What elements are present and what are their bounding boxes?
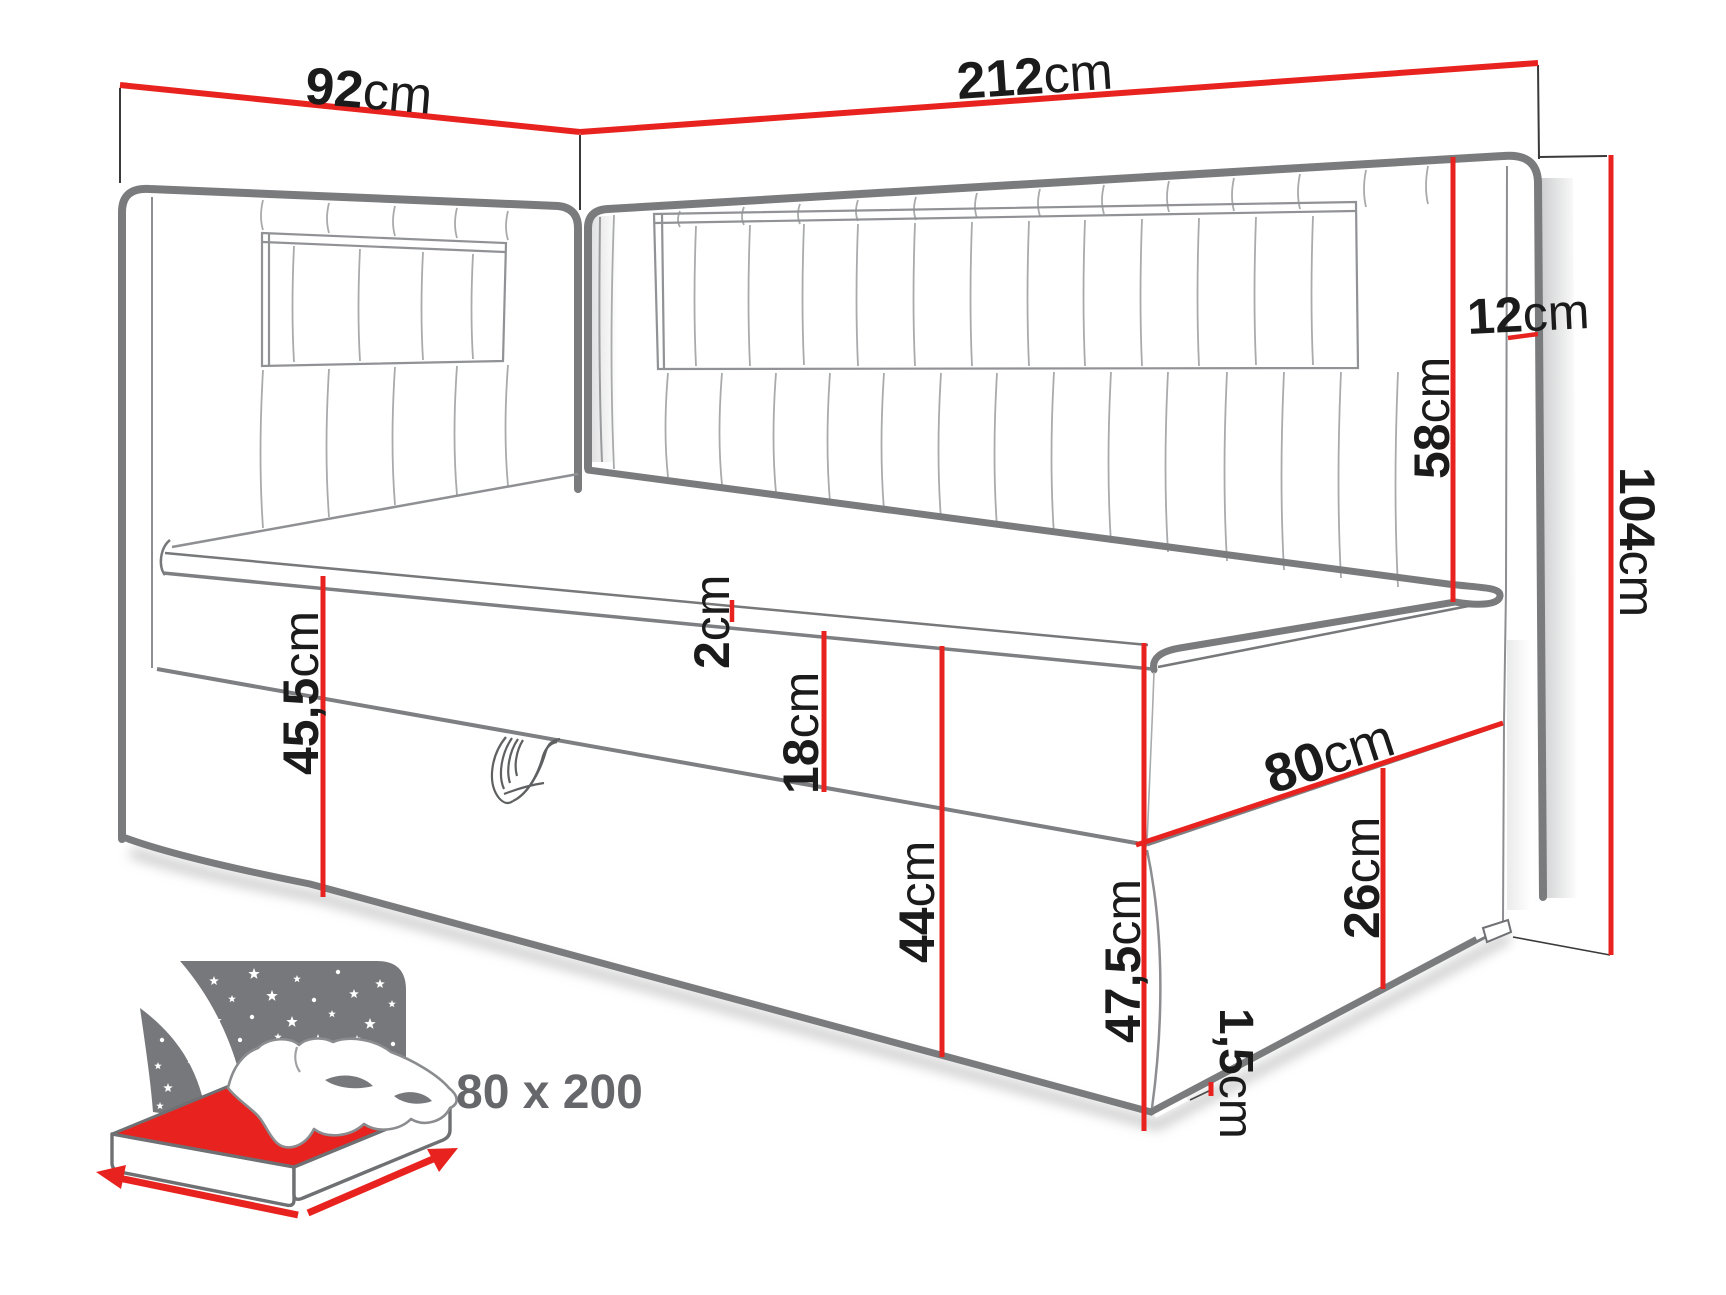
svg-text:26cm: 26cm — [1334, 817, 1390, 939]
svg-text:44cm: 44cm — [889, 841, 945, 963]
svg-text:18cm: 18cm — [773, 672, 829, 794]
svg-text:12cm: 12cm — [1466, 283, 1591, 345]
svg-text:2cm: 2cm — [684, 575, 740, 669]
svg-text:45,5cm: 45,5cm — [273, 611, 329, 775]
svg-text:92cm: 92cm — [303, 57, 435, 126]
svg-text:212cm: 212cm — [955, 42, 1115, 110]
svg-text:80 x 200: 80 x 200 — [456, 1066, 643, 1119]
svg-text:47,5cm: 47,5cm — [1095, 879, 1151, 1043]
svg-text:1,5cm: 1,5cm — [1209, 1008, 1262, 1139]
svg-text:58cm: 58cm — [1404, 357, 1460, 479]
svg-text:104cm: 104cm — [1609, 467, 1665, 617]
